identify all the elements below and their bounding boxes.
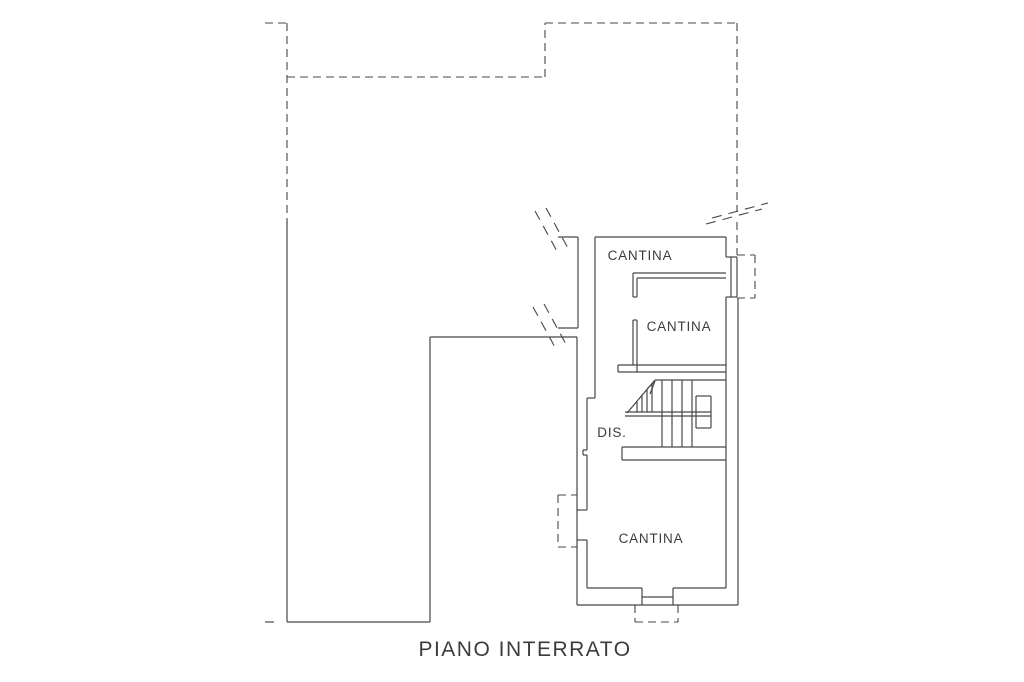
dis-corridor-label: DIS.	[597, 425, 626, 440]
plan-line	[712, 203, 768, 218]
floor-plan-page: CANTINACANTINACANTINADIS. PIANO INTERRAT…	[0, 0, 1024, 682]
room-labels-layer: CANTINACANTINACANTINADIS.	[597, 248, 711, 546]
plan-line	[533, 307, 556, 349]
cantina-middle-label: CANTINA	[647, 319, 712, 334]
plan-line	[706, 209, 762, 224]
cantina-bottom-label: CANTINA	[619, 531, 684, 546]
plan-title: PIANO INTERRATO	[418, 638, 631, 662]
plan-line	[546, 208, 569, 250]
plan-line	[544, 304, 567, 346]
floor-plan-canvas: CANTINACANTINACANTINADIS.	[0, 0, 1024, 682]
solid-walls-layer	[265, 220, 738, 622]
cantina-top-label: CANTINA	[608, 248, 673, 263]
plan-line	[535, 211, 558, 253]
